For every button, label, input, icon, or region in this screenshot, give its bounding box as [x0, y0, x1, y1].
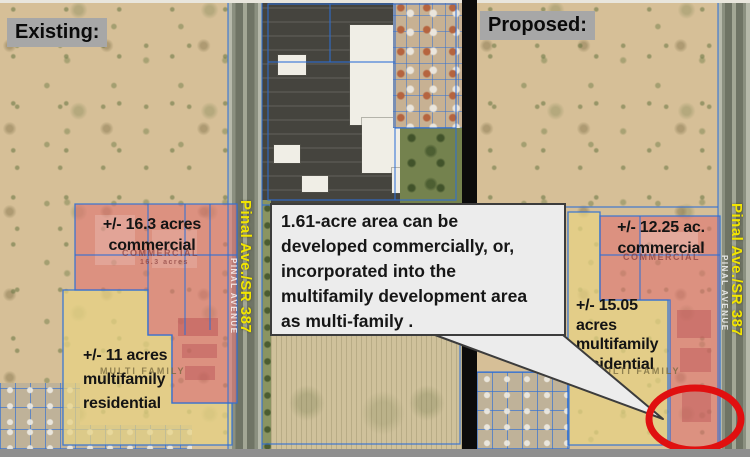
- residential-block: [393, 0, 462, 128]
- proposed-multifamily-label: +/- 15.05 acres multifamily residential: [576, 296, 658, 374]
- callout-line: incorporated into the: [281, 259, 555, 284]
- use-line: multifamily: [576, 335, 658, 355]
- panel-top-edge: [477, 0, 750, 3]
- map-annotation-multifamily: MULTI FAMILY: [595, 366, 681, 376]
- panel-top-edge: [0, 0, 462, 3]
- acreage-line: acres: [576, 316, 658, 336]
- acreage-line: +/- 16.3 acres: [84, 214, 220, 235]
- slide-bottom-edge: [0, 449, 750, 457]
- existing-title: Existing:: [7, 18, 107, 47]
- acreage-line: +/- 12.25 ac.: [605, 217, 717, 238]
- trees-park-area: [400, 128, 462, 205]
- map-annotation-commercial: COMMERCIAL: [623, 252, 700, 262]
- proposed-title: Proposed:: [480, 11, 595, 40]
- pad-building: [278, 55, 306, 75]
- use-line: residential: [83, 392, 167, 416]
- neighborhood-block: [0, 383, 80, 427]
- shopping-center-parking: [262, 0, 462, 205]
- neighborhood-block: [0, 425, 192, 449]
- acreage-line: +/- 11 acres: [83, 344, 167, 368]
- neighborhood-block: [477, 372, 569, 449]
- callout-line: developed commercially, or,: [281, 234, 555, 259]
- slide-canvas: { "left_panel": { "title": "Existing:", …: [0, 0, 750, 457]
- callout-line: as multi-family .: [281, 309, 555, 334]
- map-annotation-multifamily: MULTI FAMILY: [100, 366, 186, 376]
- callout-note: 1.61-acre area can be developed commerci…: [270, 203, 566, 336]
- pad-building: [302, 176, 328, 192]
- map-annotation-commercial: COMMERCIAL: [122, 248, 199, 258]
- map-annotation-acres: 16.3 acres: [140, 259, 189, 266]
- pad-building: [274, 145, 300, 163]
- road-name-label: Pinal Ave./SR 387: [237, 200, 254, 375]
- callout-line: multifamily development area: [281, 284, 555, 309]
- existing-multifamily-label: +/- 11 acres multifamily residential: [83, 344, 167, 416]
- road-name-label: Pinal Ave./SR 387: [728, 203, 745, 393]
- acreage-line: +/- 15.05: [576, 296, 658, 316]
- callout-line: 1.61-acre area can be: [281, 209, 555, 234]
